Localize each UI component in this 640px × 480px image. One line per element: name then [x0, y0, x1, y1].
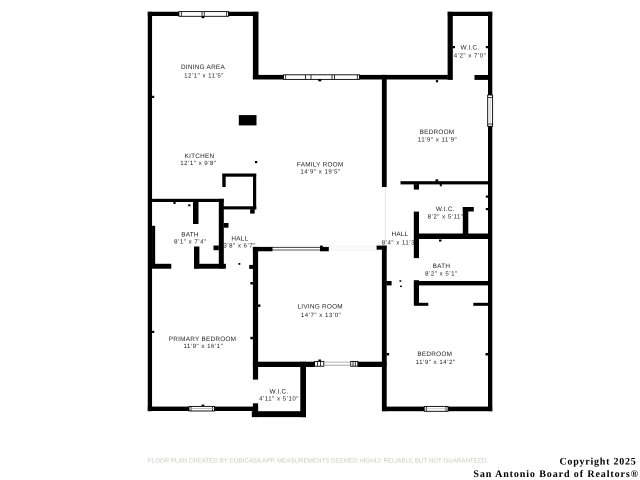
svg-text:12’1" x 11’5": 12’1" x 11’5" — [184, 72, 224, 79]
svg-text:11’9" x 14’2": 11’9" x 14’2" — [416, 359, 456, 366]
svg-text:W.I.C.: W.I.C. — [461, 45, 480, 52]
svg-text:W.I.C.: W.I.C. — [270, 389, 289, 396]
svg-text:HALL: HALL — [231, 236, 248, 243]
svg-text:San Antonio Board of Realtors®: San Antonio Board of Realtors® — [473, 469, 639, 480]
svg-text:KITCHEN: KITCHEN — [185, 153, 215, 160]
svg-text:8’1" x 7’4": 8’1" x 7’4" — [174, 239, 207, 246]
svg-text:FAMILY ROOM: FAMILY ROOM — [297, 161, 344, 168]
svg-text:12’1" x 9’8": 12’1" x 9’8" — [180, 160, 216, 167]
svg-text:4’2" x 7’0": 4’2" x 7’0" — [454, 53, 487, 60]
svg-text:FLOOR PLAN CREATED BY CUBICASA: FLOOR PLAN CREATED BY CUBICASA APP. MEAS… — [148, 457, 489, 464]
svg-text:8’4" x 11’3": 8’4" x 11’3" — [382, 239, 418, 246]
svg-text:11’9" x 11’9": 11’9" x 11’9" — [418, 137, 457, 144]
svg-text:8’2" x 5’11": 8’2" x 5’11" — [428, 213, 464, 220]
svg-text:DINING AREA: DINING AREA — [181, 64, 225, 71]
svg-text:PRIMARY BEDROOM: PRIMARY BEDROOM — [169, 336, 236, 343]
svg-text:LIVING ROOM: LIVING ROOM — [298, 304, 343, 311]
svg-text:BEDROOM: BEDROOM — [417, 351, 452, 358]
svg-text:8’2" x 5’1": 8’2" x 5’1" — [425, 271, 458, 278]
svg-text:3’8" x 6’7": 3’8" x 6’7" — [223, 243, 256, 250]
svg-text:11’9" x 16’1": 11’9" x 16’1" — [183, 343, 223, 350]
svg-text:BEDROOM: BEDROOM — [420, 129, 455, 136]
svg-text:BATH: BATH — [181, 231, 199, 238]
svg-text:Copyright 2025: Copyright 2025 — [559, 457, 636, 468]
svg-text:14’7" x 13’0": 14’7" x 13’0" — [301, 312, 341, 319]
svg-text:14’9" x 19’5": 14’9" x 19’5" — [300, 169, 340, 176]
svg-text:HALL: HALL — [392, 231, 409, 238]
svg-text:4’11" x 5’10": 4’11" x 5’10" — [259, 396, 299, 403]
svg-text:W.I.C.: W.I.C. — [436, 206, 455, 213]
svg-text:BATH: BATH — [433, 263, 451, 270]
